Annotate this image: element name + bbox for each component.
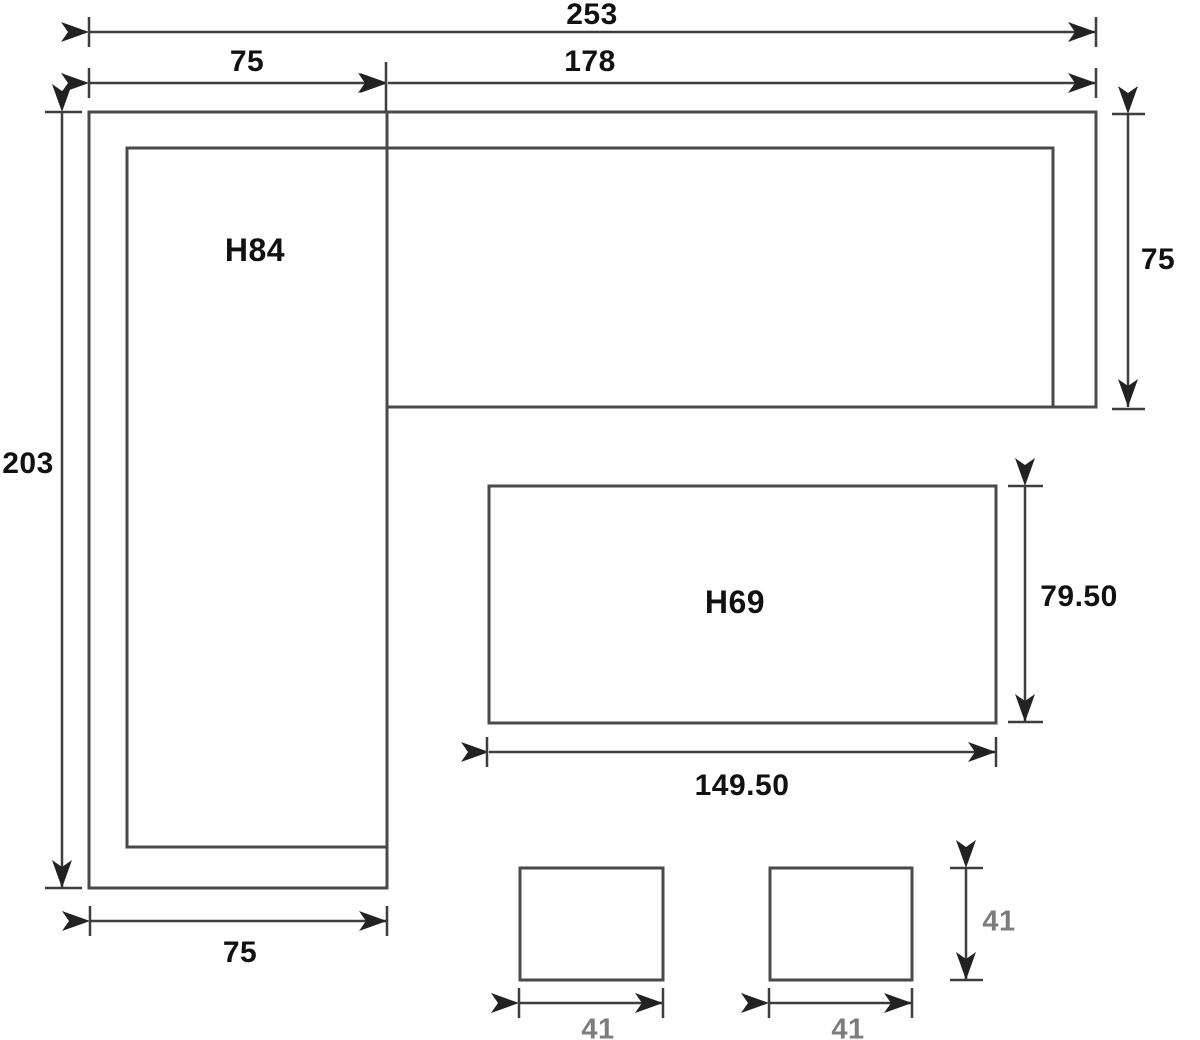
left-section-height-label: H84 <box>225 234 285 266</box>
table-height-label: H69 <box>705 586 765 618</box>
stool-depth-label: 41 <box>982 908 1015 937</box>
diagram-canvas <box>0 0 1200 1040</box>
left-bottom-width-label: 75 <box>223 938 257 968</box>
stool-left-outline <box>520 868 663 980</box>
stool1-width-label: 41 <box>581 1016 614 1040</box>
right-depth-label: 75 <box>1141 245 1175 275</box>
table-width-label: 149.50 <box>695 771 790 801</box>
table-depth-label: 79.50 <box>1040 582 1118 612</box>
right-width-label: 178 <box>564 47 616 77</box>
sofa-outer-outline <box>89 112 1096 888</box>
sofa-dimension-diagram: 253 75 178 203 75 H84 H69 79.50 149.50 7… <box>0 0 1200 1040</box>
total-depth-label: 203 <box>2 449 54 479</box>
stool-right-outline <box>770 868 912 980</box>
total-width-label: 253 <box>566 0 618 30</box>
stool2-width-label: 41 <box>831 1016 864 1040</box>
left-width-label: 75 <box>230 47 264 77</box>
